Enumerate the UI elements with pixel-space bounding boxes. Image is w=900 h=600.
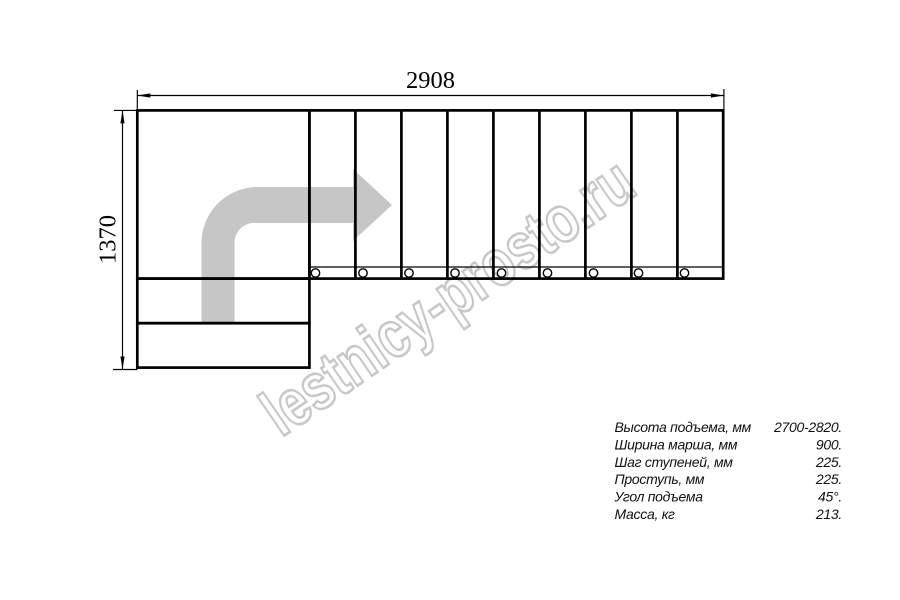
svg-text:900.: 900.	[816, 436, 842, 452]
svg-text:2700-2820.: 2700-2820.	[773, 419, 842, 435]
svg-text:2908: 2908	[406, 67, 455, 94]
svg-text:Ширина марша, мм: Ширина марша, мм	[615, 436, 738, 452]
svg-text:Высота подъема, мм: Высота подъема, мм	[615, 419, 752, 435]
svg-text:45°.: 45°.	[818, 489, 842, 505]
svg-text:Угол подъема: Угол подъема	[614, 489, 704, 505]
svg-text:225.: 225.	[815, 471, 842, 487]
svg-text:Масса, кг: Масса, кг	[615, 506, 676, 522]
svg-text:213.: 213.	[815, 506, 842, 522]
svg-text:Шаг ступеней, мм: Шаг ступеней, мм	[615, 454, 734, 470]
svg-text:225.: 225.	[815, 454, 842, 470]
svg-text:1370: 1370	[95, 215, 122, 264]
svg-text:Проступь, мм: Проступь, мм	[615, 471, 705, 487]
